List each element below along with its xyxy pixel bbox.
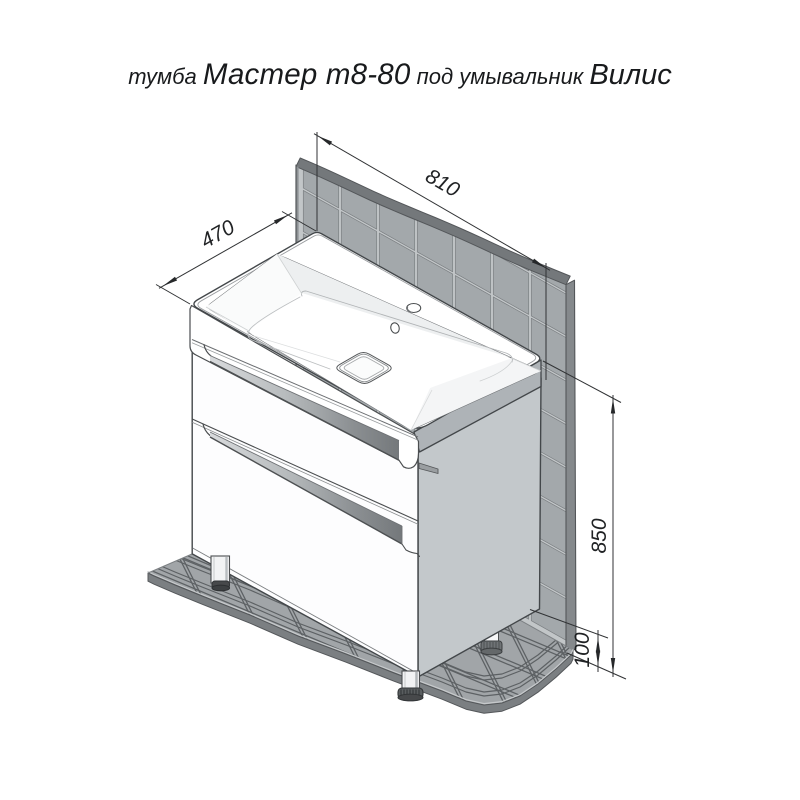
svg-text:810: 810 [422,165,464,203]
svg-text:100: 100 [571,632,594,667]
svg-text:850: 850 [588,518,611,553]
svg-text:470: 470 [197,216,239,253]
